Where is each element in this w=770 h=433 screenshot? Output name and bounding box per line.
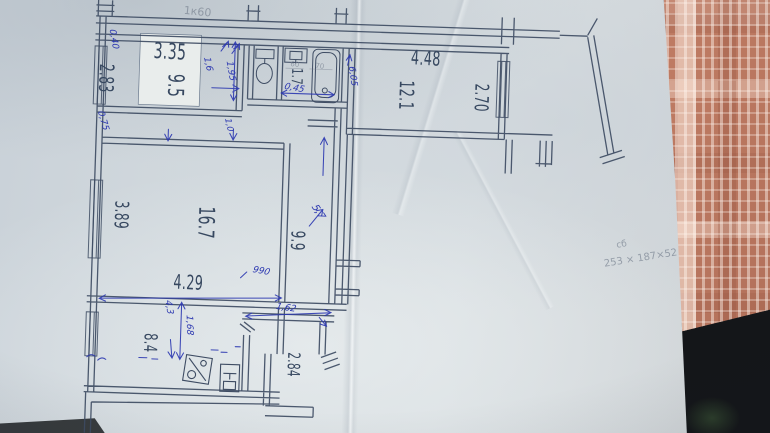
kitchen-sink-icon — [183, 355, 213, 385]
pen-note-16: 1,6 — [201, 57, 214, 72]
photo-of-floor-plan: 3.35 9.5 2.83 1.7 4.48 12.1 2.70 16.7 3.… — [0, 0, 770, 433]
pencil-note-tub: 70 — [315, 62, 325, 71]
dim-living-area: 16.7 — [192, 206, 218, 239]
pencil-note-top: 1к60 — [183, 4, 212, 20]
pen-note-57: 5,7 — [309, 203, 328, 222]
toilet-icon — [255, 49, 274, 84]
dim-upper-room-width: 4.48 — [410, 45, 441, 71]
dim-entry-corridor: 2.84 — [283, 352, 303, 377]
pen-note-168: 1,68 — [184, 315, 195, 336]
dim-bedroom-area: 9.5 — [162, 73, 188, 97]
dim-hallway-area: 9.9 — [286, 230, 309, 251]
pen-note-990: 990 — [251, 265, 271, 278]
dim-upper-room-depth: 2.70 — [470, 83, 494, 112]
dim-upper-room-area: 12.1 — [394, 80, 419, 111]
dim-bedroom-depth: 2.83 — [94, 63, 118, 93]
pen-note-10: 1,0 — [222, 118, 235, 132]
pencil-note-sink: 60 — [290, 60, 300, 69]
pen-note-195: 1,95 — [224, 61, 238, 82]
pen-note-040: 0,40 — [107, 29, 121, 50]
dim-living-width: 4.29 — [173, 269, 204, 294]
floor-plan-group: 3.35 9.5 2.83 1.7 4.48 12.1 2.70 16.7 3.… — [82, 0, 629, 433]
pencil-margin-calc: 253 × 187×52 — [603, 247, 678, 269]
pen-note-43: 4,3 — [162, 300, 174, 315]
dim-living-depth: 3.89 — [110, 200, 134, 229]
dim-bedroom-width: 3.35 — [153, 39, 187, 66]
pencil-margin-label: сб — [616, 239, 629, 251]
floor-plan-drawing: 3.35 9.5 2.83 1.7 4.48 12.1 2.70 16.7 3.… — [0, 0, 770, 433]
dim-kitchen-area: 8.4 — [139, 333, 161, 353]
stove-icon — [220, 364, 240, 392]
margin-pencil-notes: сб 253 × 187×52 — [603, 239, 678, 270]
